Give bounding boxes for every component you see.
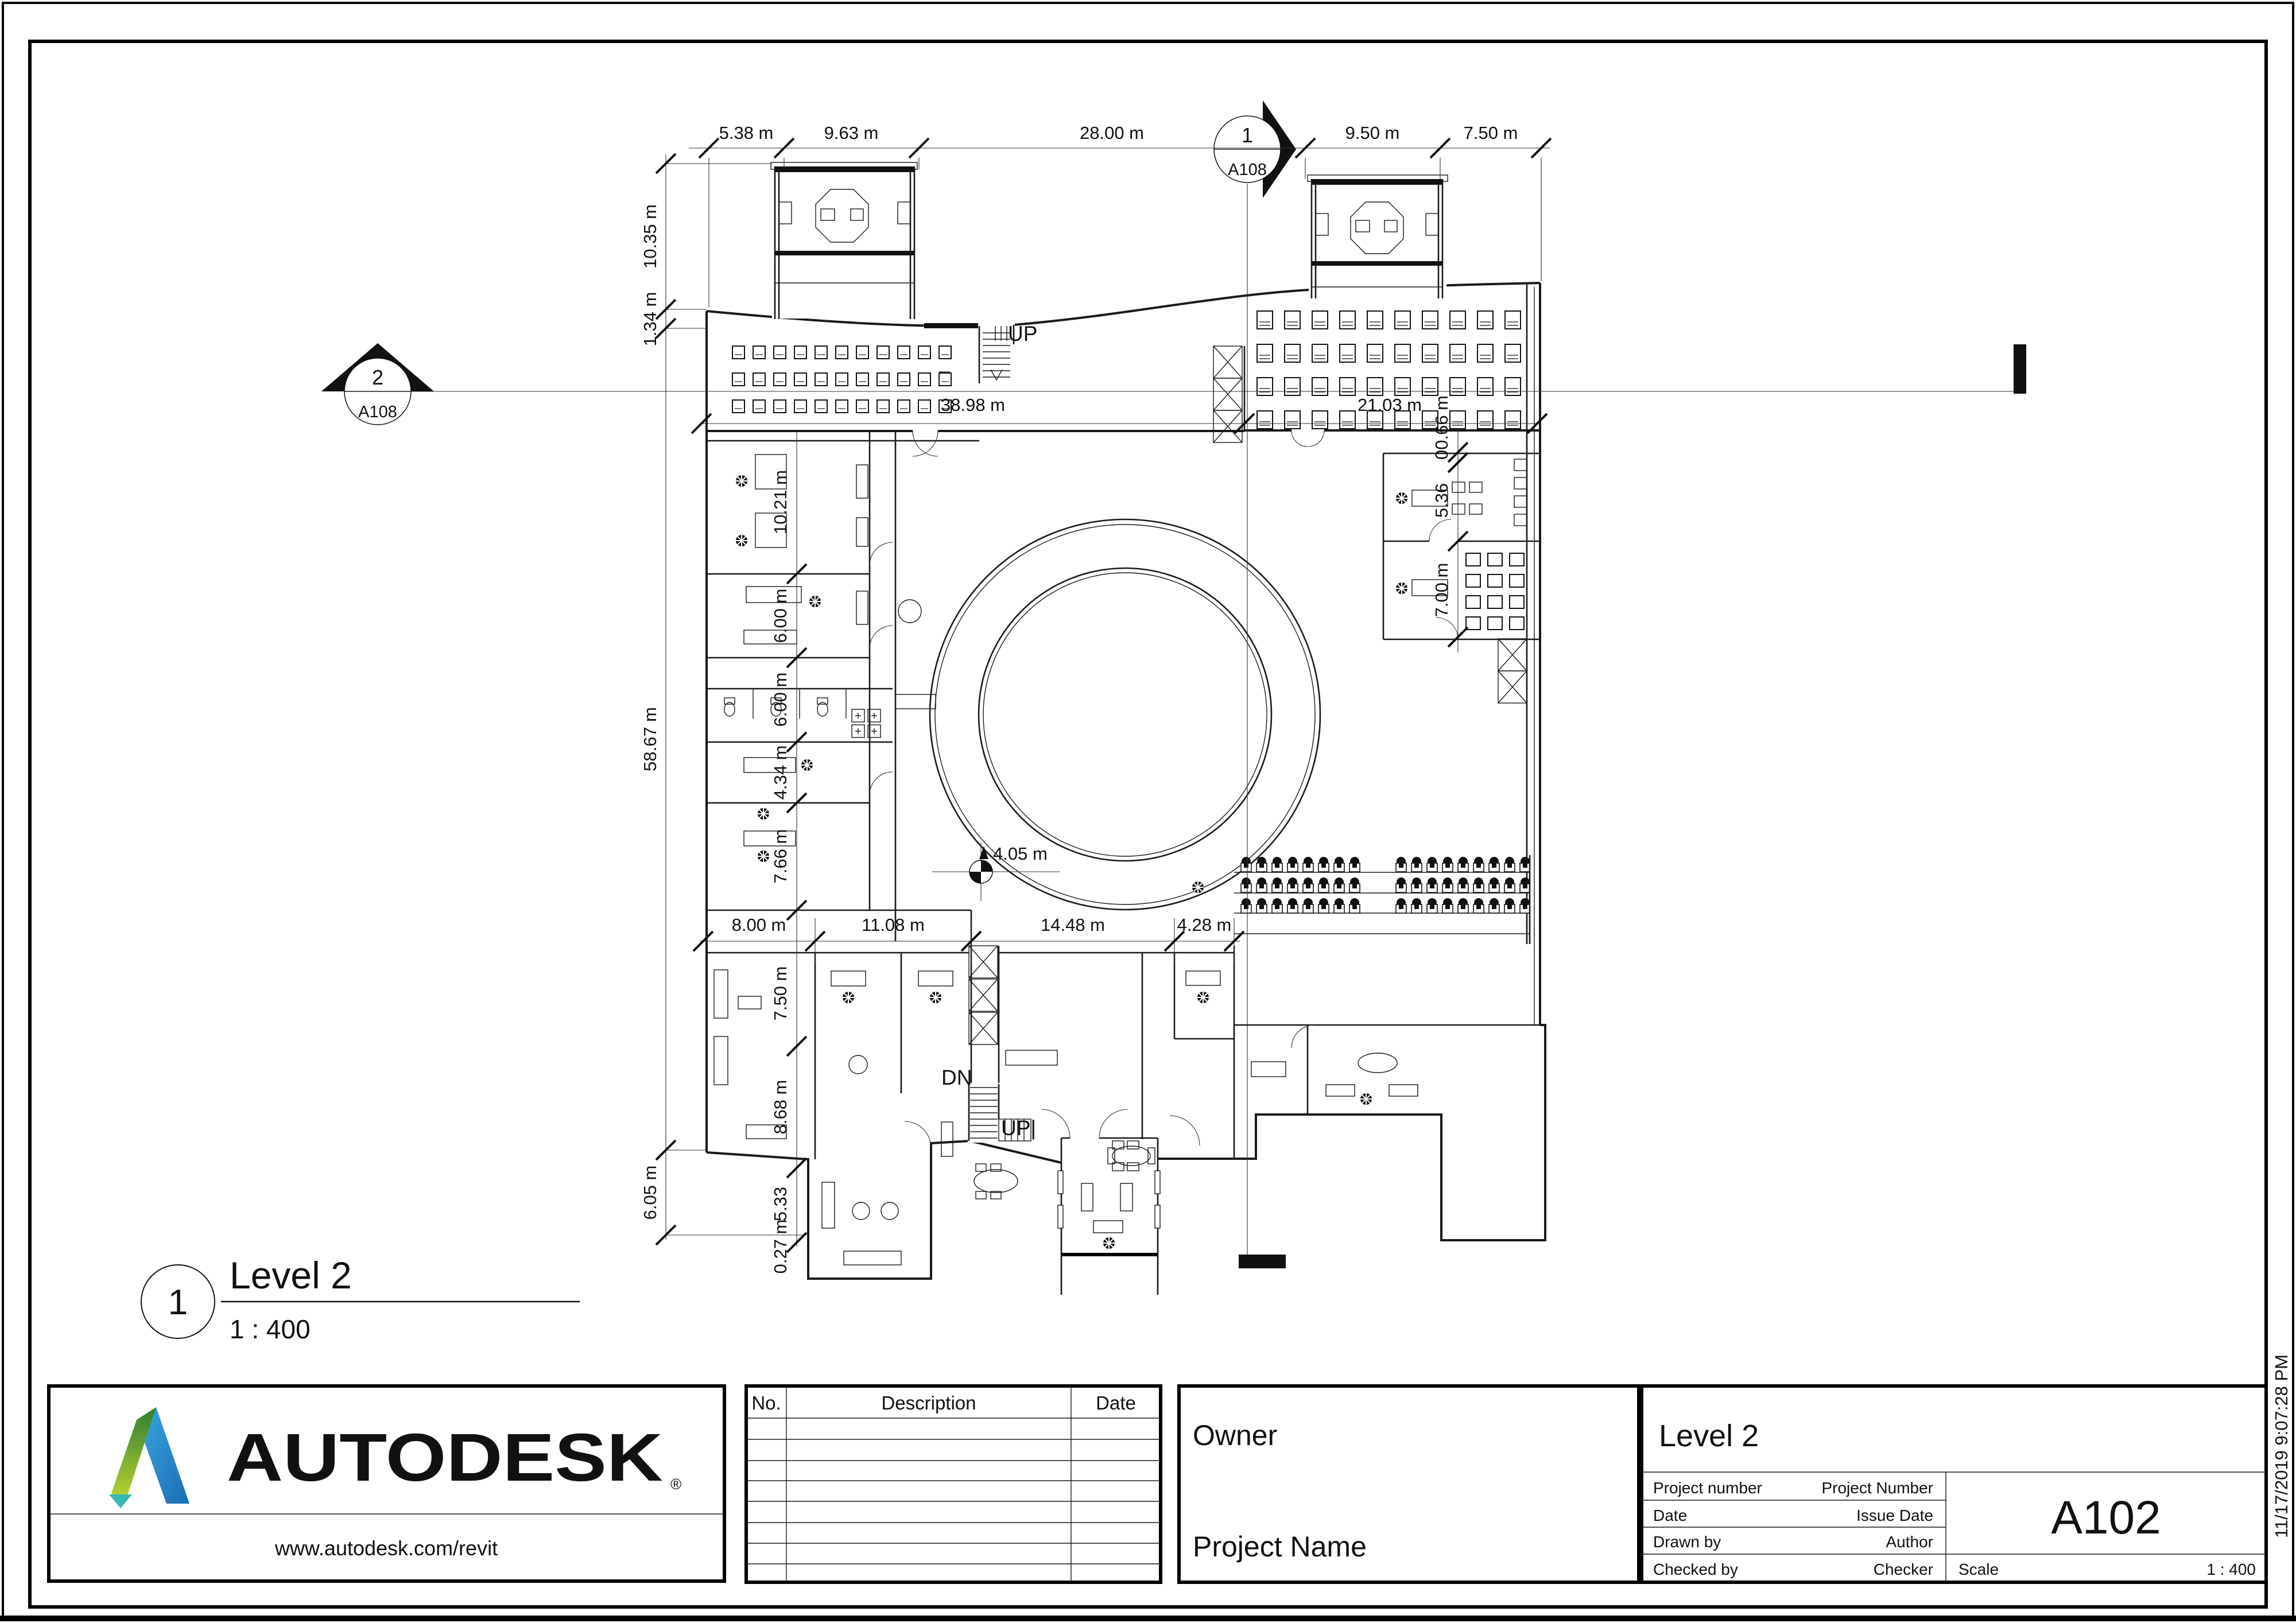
stair-up-label: UP xyxy=(1008,322,1037,345)
dim-label: 8.00 m xyxy=(732,915,786,935)
dimensions-left-inner: 10.21 m 6.00 m 6.00 m 4.34 m 7.66 m 7.50… xyxy=(770,431,806,1273)
view-title: 1 Level 2 1 : 400 xyxy=(141,1254,580,1344)
dim-label: 4.34 m xyxy=(770,746,790,800)
dim-label: 6.00 m xyxy=(770,589,790,643)
dim-label: 0.27 m xyxy=(770,1220,790,1274)
print-timestamp: 11/17/2019 9:07:28 PM xyxy=(2271,1354,2291,1538)
dim-label: 1.34 m xyxy=(640,292,660,347)
project-name: Project Name xyxy=(1193,1531,1367,1563)
sheet-info-box: Level 2 Project number Project Number Da… xyxy=(1642,1386,2266,1582)
scale-label: Scale xyxy=(1958,1560,1999,1578)
revision-table: No. Description Date xyxy=(746,1386,1161,1582)
dim-label: 8.68 m xyxy=(770,1080,790,1135)
field-value: Checker xyxy=(1874,1560,1933,1578)
view-scale: 1 : 400 xyxy=(230,1314,311,1344)
field-label: Drawn by xyxy=(1653,1533,1721,1551)
brand-wordmark: AUTODESK xyxy=(227,1420,663,1496)
logo-box: AUTODESK ® www.autodesk.com/revit xyxy=(49,1386,724,1581)
view-number: 1 xyxy=(168,1283,188,1322)
atrium-ring xyxy=(930,519,1320,910)
marker-number: 2 xyxy=(372,366,383,389)
sheet-svg: UP DN UP| xyxy=(0,0,2296,1623)
dim-label: 21.03 m xyxy=(1358,395,1422,415)
revision-col-description: Description xyxy=(881,1392,976,1414)
dim-label: 00.66 m xyxy=(1432,395,1452,460)
view-name: Level 2 xyxy=(230,1254,352,1296)
autodesk-logo-icon xyxy=(109,1407,189,1508)
revision-col-no: No. xyxy=(751,1392,781,1414)
website-link: www.autodesk.com/revit xyxy=(274,1536,498,1560)
section-marker-1: 1 A108 xyxy=(1214,100,1296,198)
section-marker-2: 2 A108 xyxy=(321,343,434,425)
dim-label: 4.05 m xyxy=(993,844,1048,864)
dim-label: 58.67 m xyxy=(640,707,660,771)
sinks xyxy=(852,709,881,737)
dim-label: 11.08 m xyxy=(862,915,925,935)
dim-label: 28.00 m xyxy=(1080,123,1144,143)
marker-sheet: A108 xyxy=(358,403,397,421)
field-value: Issue Date xyxy=(1856,1506,1933,1524)
owner-label: Owner xyxy=(1193,1419,1277,1451)
spot-dimension: 4.05 m xyxy=(932,842,1060,901)
dim-label: 7.50 m xyxy=(770,966,790,1021)
sheet-number: A102 xyxy=(2051,1492,2161,1544)
field-label: Date xyxy=(1653,1506,1687,1524)
registered-mark: ® xyxy=(670,1476,681,1493)
dim-label: 5.38 m xyxy=(719,123,774,143)
dim-label: 5.33 xyxy=(770,1187,790,1221)
dim-label: 38.98 m xyxy=(941,395,1005,415)
dim-label: 9.63 m xyxy=(824,123,879,143)
field-label: Checked by xyxy=(1653,1560,1738,1578)
dim-label: 10.21 m xyxy=(770,470,790,534)
dim-label: 10.35 m xyxy=(640,204,660,269)
dim-label: 7.00 m xyxy=(1432,563,1452,618)
stair-upper: UP xyxy=(978,321,1037,385)
section-line-end-bar xyxy=(2014,344,2026,394)
dim-label: 14.48 m xyxy=(1041,915,1105,935)
sheet-view-name: Level 2 xyxy=(1659,1419,1759,1453)
floor-plan: UP DN UP| xyxy=(707,162,1545,1295)
revision-col-date: Date xyxy=(1096,1392,1136,1414)
sheet-border xyxy=(30,41,2266,1607)
dim-label: 6.00 m xyxy=(770,673,790,727)
door-arcs xyxy=(870,430,1458,1148)
sheet-frame xyxy=(0,3,2296,1620)
dim-label: 4.28 m xyxy=(1177,915,1232,935)
dim-label: 5.36 xyxy=(1432,483,1452,518)
field-label: Project number xyxy=(1653,1479,1762,1497)
classroom-grid xyxy=(1254,308,1530,440)
field-value: Author xyxy=(1886,1533,1934,1551)
dim-label: 9.50 m xyxy=(1345,123,1400,143)
section-line-end-bar xyxy=(1239,1255,1286,1268)
dim-label: 6.05 m xyxy=(640,1166,660,1220)
left-tower xyxy=(771,162,917,319)
field-value: Project Number xyxy=(1821,1479,1933,1497)
scale-value: 1 : 400 xyxy=(2206,1560,2256,1578)
dim-label: 7.66 m xyxy=(770,829,790,884)
lobby-seat-grid xyxy=(730,343,957,424)
audience-rows xyxy=(1234,855,1530,944)
owner-box: Owner Project Name xyxy=(1179,1386,1639,1582)
right-tower xyxy=(1308,175,1448,300)
dim-label: 7.50 m xyxy=(1464,123,1518,143)
stair-up2-label: UP| xyxy=(1001,1116,1036,1140)
stair-dn-label: DN xyxy=(941,1066,972,1089)
stair-lower: DN UP| xyxy=(941,1066,1036,1143)
drawing-sheet: UP DN UP| xyxy=(0,0,2296,1623)
marker-sheet: A108 xyxy=(1228,161,1267,179)
title-block: AUTODESK ® www.autodesk.com/revit No. De… xyxy=(49,1386,2266,1582)
marker-number: 1 xyxy=(1242,123,1253,147)
washrooms xyxy=(724,689,881,737)
